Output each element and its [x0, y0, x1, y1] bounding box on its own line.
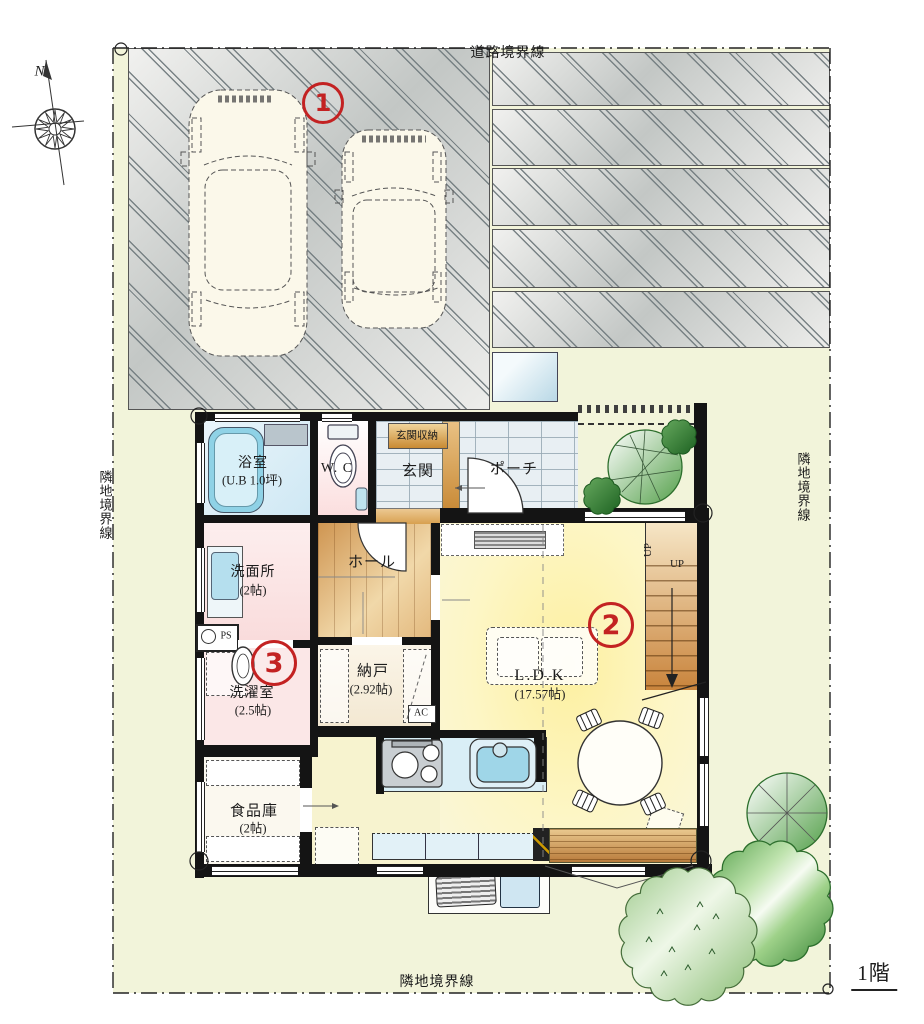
window-right-ldk-1 — [699, 698, 709, 756]
deck-post — [533, 828, 549, 861]
ps-circle — [201, 629, 216, 644]
refrigerator — [315, 827, 359, 866]
wall-bath-wc — [310, 412, 318, 523]
road-boundary-label: 道路境界線 — [471, 42, 546, 62]
neighbor-boundary-right-label: 隣地境界線 — [794, 452, 813, 522]
bath-counter — [264, 424, 308, 446]
compass-rose — [12, 60, 84, 185]
slab-strip — [492, 229, 830, 288]
washroom-label: 洗面所 — [231, 561, 276, 581]
door-gap-pantry — [300, 788, 312, 832]
wall-under-wc — [310, 515, 376, 523]
neighbor-boundary-bottom-label: 隣地境界線 — [400, 971, 475, 991]
wood-deck — [549, 828, 697, 863]
window-bottom-pantry — [212, 866, 298, 876]
stairs-treads — [645, 565, 697, 690]
ac-label: AC — [414, 708, 428, 719]
window-left-bath — [196, 443, 205, 503]
kitchen-counter — [378, 737, 547, 792]
neighbor-boundary-left-label: 隣地境界線 — [96, 470, 115, 540]
up-label-upper: UP — [670, 558, 684, 570]
wall-kitchen-right — [534, 730, 546, 782]
tv — [474, 531, 546, 549]
compass-north-label: N — [34, 64, 45, 81]
pantry-shelf-bottom — [206, 836, 300, 862]
window-left-laundry — [196, 658, 205, 740]
outdoor-ac-unit — [435, 873, 497, 907]
window-wc-top — [322, 413, 352, 422]
window-left-washroom — [196, 548, 205, 612]
closet-shelf-left — [320, 649, 349, 723]
window-left-pantry — [196, 782, 205, 852]
window-garden-ldk — [585, 511, 685, 522]
window-right-ldk-2 — [699, 764, 709, 826]
door-gap-closet — [352, 637, 402, 645]
garden-fence — [578, 405, 694, 425]
marker-laundry: 3 — [251, 640, 297, 686]
wall-kitchen-left — [376, 730, 384, 794]
laundry-size-label: (2.5帖) — [235, 700, 271, 719]
marker-ldk: 2 — [588, 602, 634, 648]
wall-wc-entrance — [368, 412, 376, 523]
hall-floor — [318, 523, 431, 637]
bath-size-label: (U.B 1.0坪) — [222, 470, 282, 489]
wall-under-bath — [195, 515, 318, 523]
pantry-shelf-top — [206, 760, 300, 786]
washroom-size-label: (2帖) — [239, 580, 266, 599]
wall-kitchen-back — [376, 730, 546, 738]
bottom-cabinets — [372, 833, 535, 860]
floor-plan-canvas: 道路境界線 隣地境界線 隣地境界線 隣地境界線 N 1階 浴室 (U.B 1.0… — [0, 0, 924, 1024]
outdoor-box — [500, 874, 540, 908]
ps-label: PS — [220, 631, 231, 642]
window-bottom-kitchen — [377, 866, 423, 875]
slab-strip — [492, 168, 830, 226]
porch-label: ポーチ — [490, 458, 538, 479]
window-bottom-deck — [572, 866, 645, 876]
entrance-step — [376, 508, 440, 524]
paving-square — [492, 352, 558, 402]
ldk-label: L.D.K — [515, 667, 566, 685]
marker-parking: 1 — [302, 82, 344, 124]
slab-strip — [492, 291, 830, 348]
door-gap-hall-ldk — [431, 575, 440, 620]
closet-label: 納戸 — [357, 660, 389, 681]
slab-strip — [492, 109, 830, 166]
entrance-storage-label: 玄関収納 — [396, 428, 438, 443]
hall-label: ホール — [348, 551, 396, 572]
up-label-lower: UP — [642, 543, 654, 557]
wall-laundry-bottom — [195, 745, 318, 757]
wc-label: W. C — [321, 461, 353, 477]
window-bath-top — [215, 413, 300, 422]
closet-size-label: (2.92帖) — [350, 679, 393, 698]
pantry-size-label: (2帖) — [239, 818, 266, 837]
ldk-size-label: (17.57帖) — [515, 684, 566, 703]
wall-garden-right — [694, 403, 707, 513]
entrance-label: 玄関 — [402, 460, 434, 481]
floor-label: 1階 — [851, 957, 897, 991]
